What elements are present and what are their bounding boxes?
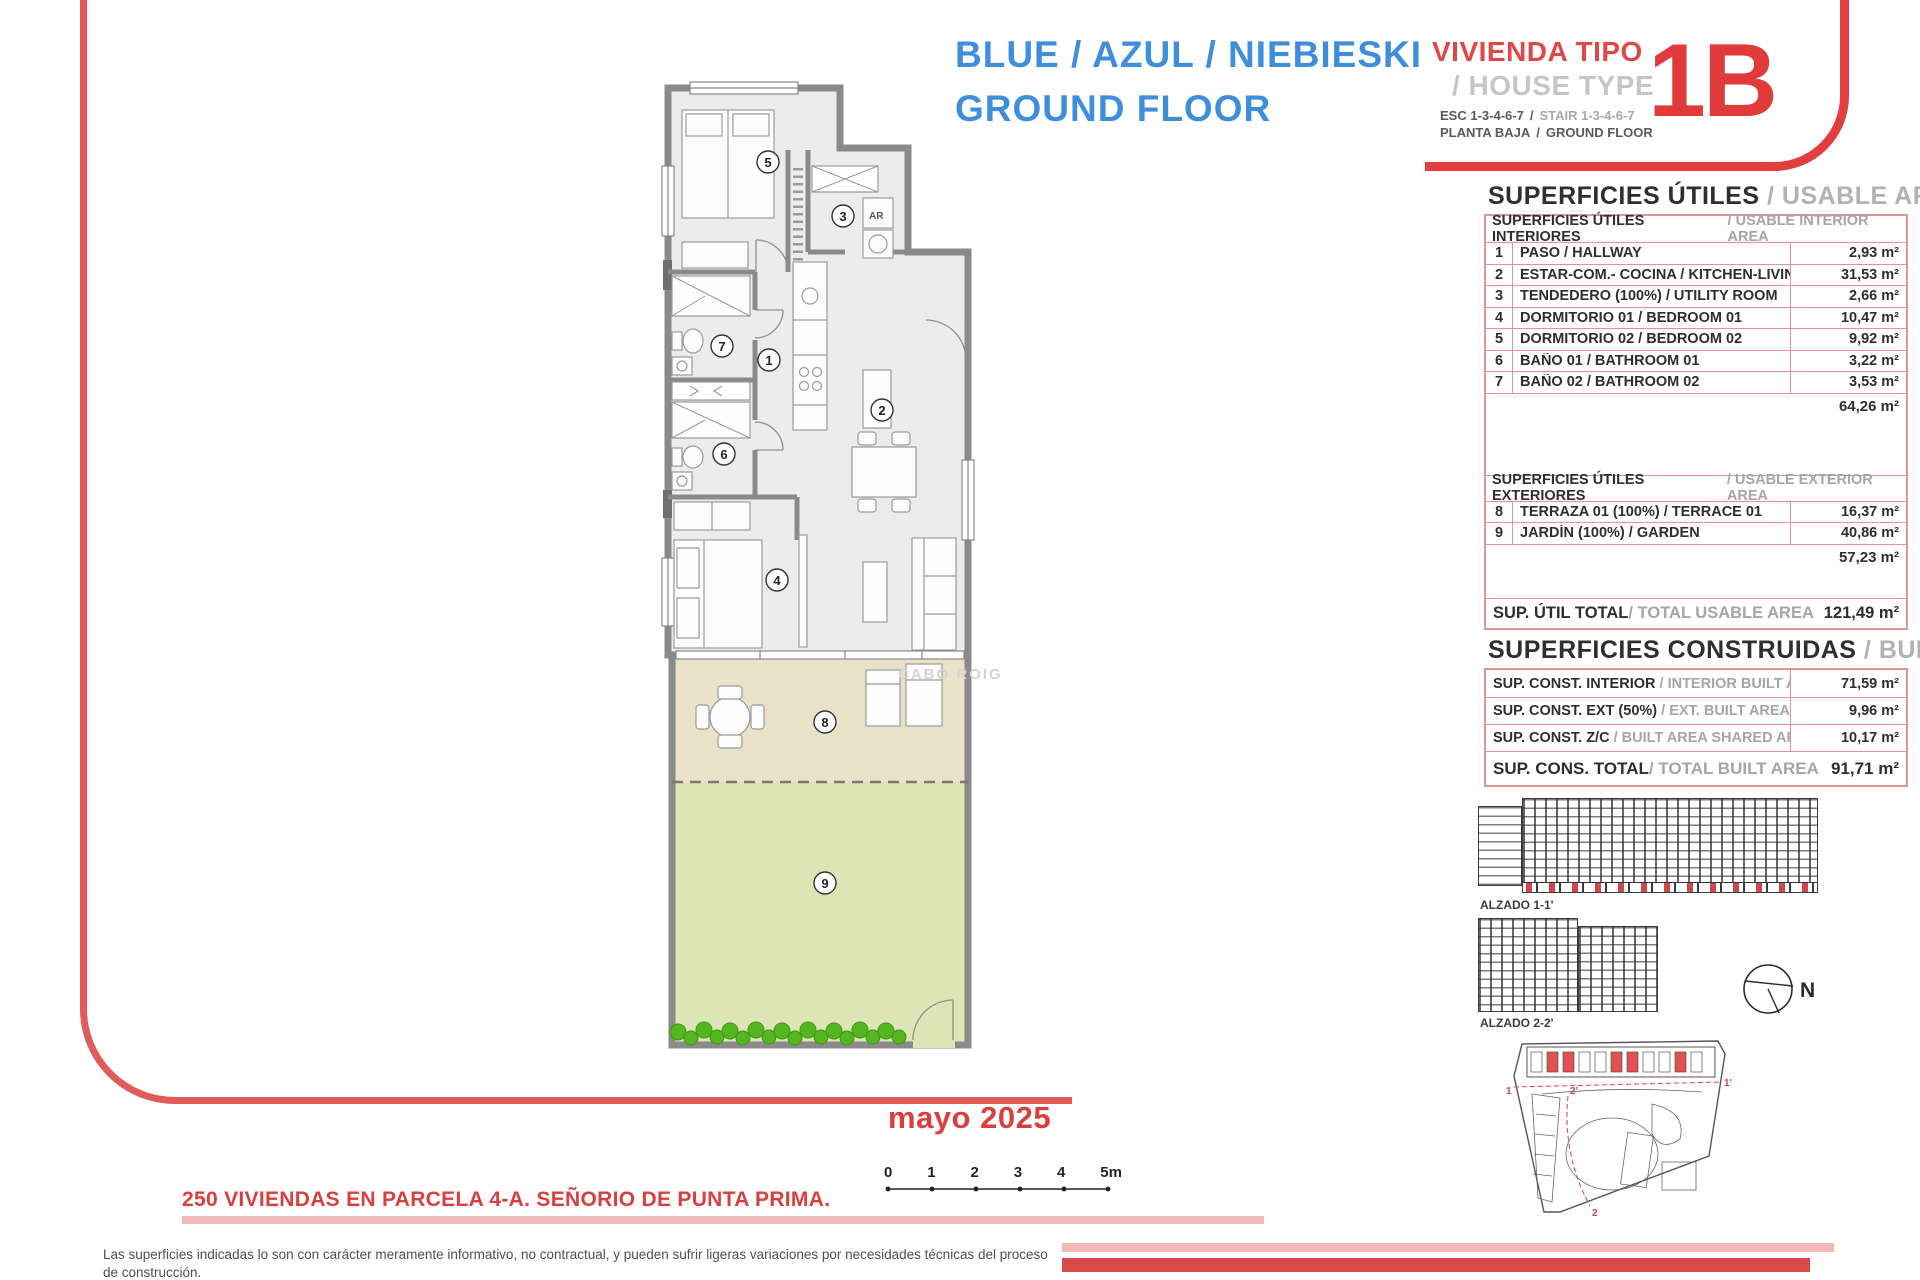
table-row: 1PASO / HALLWAY2,93 m² <box>1486 242 1906 264</box>
row-value: 16,37 m² <box>1790 502 1906 523</box>
table-row: 7BAÑO 02 / BATHROOM 023,53 m² <box>1486 371 1906 393</box>
svg-text:6: 6 <box>720 447 727 462</box>
elevation2-left-block <box>1478 918 1578 1012</box>
row-num: 8 <box>1486 502 1513 523</box>
elevation1 <box>1522 798 1818 893</box>
usable-area-table: SUPERFICIES ÚTILES INTERIORES / USABLE I… <box>1484 214 1908 630</box>
svg-text:1: 1 <box>1506 1086 1512 1097</box>
ar-appliance-label: AR <box>869 211 884 222</box>
row-label-en: / EXT. BUILT AREA <box>1657 703 1790 719</box>
row-value: 2,66 m² <box>1790 286 1906 307</box>
row-label: TENDEDERO (100%) / UTILITY ROOM <box>1513 288 1790 304</box>
house-type-label-es: VIVIENDA TIPO <box>1432 36 1643 68</box>
utility-fixtures <box>863 198 893 258</box>
room-label-6: 6 <box>713 443 735 465</box>
stair-floor-block: ESC 1-3-4-6-7/STAIR 1-3-4-6-7 PLANTA BAJ… <box>1440 108 1653 142</box>
room-label-4: 4 <box>766 569 788 591</box>
row-value: 10,47 m² <box>1790 308 1906 329</box>
section-lines <box>1514 1082 1722 1206</box>
planta-es: PLANTA BAJA <box>1440 125 1530 140</box>
row-value: 71,59 m² <box>1790 670 1906 697</box>
page-title: BLUE / AZUL / NIEBIESKI GROUND FLOOR <box>955 28 1422 135</box>
unit-code: 1B <box>1648 22 1775 141</box>
svg-text:2: 2 <box>1592 1208 1598 1219</box>
built-total-label-en: / TOTAL BUILT AREA <box>1649 759 1819 779</box>
row-value: 40,86 m² <box>1790 523 1906 544</box>
table-row: 5DORMITORIO 02 / BEDROOM 029,92 m² <box>1486 328 1906 350</box>
room-label-5: 5 <box>757 151 779 173</box>
exterior-header-en: / USABLE EXTERIOR AREA <box>1727 472 1906 504</box>
built-total-value: 91,71 m² <box>1831 759 1906 779</box>
row-value: 10,17 m² <box>1790 725 1906 751</box>
elevation2-label: ALZADO 2-2' <box>1480 1016 1554 1030</box>
wall-pier <box>663 260 672 290</box>
room-label-2: 2 <box>871 399 893 421</box>
elevation1-left-tower <box>1478 806 1522 886</box>
disclaimer: Las superficies indicadas lo son con car… <box>103 1246 1053 1280</box>
row-num: 9 <box>1486 523 1513 544</box>
room-label-8: 8 <box>814 711 836 733</box>
usable-area-title: SUPERFICIES ÚTILES / USABLE AREA <box>1488 182 1920 211</box>
elevation2-right-block <box>1578 926 1658 1012</box>
section-markers: 1 1' 2' 2 <box>1506 1078 1732 1219</box>
row-label: JARDÍN (100%) / GARDEN <box>1513 525 1790 541</box>
room-label-9: 9 <box>814 872 836 894</box>
built-area-title: SUPERFICIES CONSTRUIDAS / BUILT AREA <box>1488 636 1920 665</box>
built-total-label-es: SUP. CONS. TOTAL <box>1493 759 1649 779</box>
svg-text:4: 4 <box>773 573 781 588</box>
built-total-row: SUP. CONS. TOTAL / TOTAL BUILT AREA 91,7… <box>1486 751 1906 785</box>
room-label-7: 7 <box>711 335 733 357</box>
interior-header-es: SUPERFICIES ÚTILES INTERIORES <box>1492 213 1728 245</box>
elevation1-label: ALZADO 1-1' <box>1480 898 1554 912</box>
scale-tick-label: 0 <box>884 1164 892 1181</box>
landscape-paths <box>1532 1089 1702 1202</box>
interior-subtotal-row: 64,26 m² <box>1486 393 1906 419</box>
svg-text:5: 5 <box>764 155 771 170</box>
table-spacer <box>1486 419 1906 475</box>
interior-subtotal: 64,26 m² <box>1839 398 1899 415</box>
built-area-title-en: / BUILT AREA <box>1856 636 1920 664</box>
row-value: 9,96 m² <box>1790 698 1906 724</box>
disclaimer-es: Las superficies indicadas lo son con car… <box>103 1246 1053 1280</box>
planta-en: GROUND FLOOR <box>1546 125 1653 140</box>
row-value: 31,53 m² <box>1790 265 1906 286</box>
scale-bar: 0 1 2 3 4 5m <box>884 1164 1122 1201</box>
site-plan: 1 1' 2' 2 <box>1502 1034 1742 1224</box>
svg-text:7: 7 <box>718 339 725 354</box>
exterior-subtotal-row: 57,23 m² <box>1486 544 1906 570</box>
row-num: 4 <box>1486 308 1513 329</box>
table-row: SUP. CONST. INTERIOR / INTERIOR BUILT AR… <box>1486 670 1906 697</box>
row-label: ESTAR-COM.- COCINA / KITCHEN-LIVING <box>1513 267 1790 283</box>
room-label-1: 1 <box>758 349 780 371</box>
row-label: PASO / HALLWAY <box>1513 245 1790 261</box>
row-label-es: SUP. CONST. Z/C <box>1493 730 1610 746</box>
interior-header-row: SUPERFICIES ÚTILES INTERIORES / USABLE I… <box>1486 216 1906 242</box>
floor-plan: AR <box>660 70 980 1060</box>
usable-total-label-es: SUP. ÚTIL TOTAL <box>1493 604 1628 623</box>
house-type-label-en: / HOUSE TYPE <box>1452 70 1654 102</box>
row-label-es: SUP. CONST. EXT (50%) <box>1493 703 1657 719</box>
exterior-header-es: SUPERFICIES ÚTILES EXTERIORES <box>1492 472 1727 504</box>
svg-text:9: 9 <box>821 876 828 891</box>
scale-tick-label: 4 <box>1057 1164 1065 1181</box>
exterior-subtotal: 57,23 m² <box>1839 549 1899 566</box>
scale-line <box>884 1184 1122 1196</box>
row-num: 1 <box>1486 243 1513 264</box>
row-value: 3,53 m² <box>1790 372 1906 393</box>
svg-text:1': 1' <box>1724 1078 1732 1089</box>
table-spacer <box>1486 570 1906 598</box>
row-label-en: / INTERIOR BUILT AREA <box>1655 676 1790 692</box>
built-area-title-es: SUPERFICIES CONSTRUIDAS <box>1488 636 1856 664</box>
row-label: DORMITORIO 02 / BEDROOM 02 <box>1513 331 1790 347</box>
watermark: CABO ROIG <box>898 666 1003 683</box>
row-label: BAÑO 01 / BATHROOM 01 <box>1513 353 1790 369</box>
building-units <box>1531 1052 1702 1072</box>
esc-en: STAIR 1-3-4-6-7 <box>1539 108 1634 123</box>
usable-total-label-en: / TOTAL USABLE AREA <box>1628 604 1813 623</box>
svg-text:8: 8 <box>821 715 828 730</box>
slash: / <box>1530 125 1546 140</box>
slash: / <box>1524 108 1540 123</box>
elevation1-ground-floor <box>1523 882 1817 892</box>
table-row: 2ESTAR-COM.- COCINA / KITCHEN-LIVING31,5… <box>1486 264 1906 286</box>
usable-total-row: SUP. ÚTIL TOTAL / TOTAL USABLE AREA 121,… <box>1486 598 1906 628</box>
scale-tick-label: 2 <box>971 1164 979 1181</box>
scale-labels: 0 1 2 3 4 5m <box>884 1164 1122 1183</box>
usable-total-value: 121,49 m² <box>1824 604 1906 623</box>
scale-tick-label: 5m <box>1100 1164 1122 1181</box>
svg-text:1: 1 <box>765 353 772 368</box>
row-value: 2,93 m² <box>1790 243 1906 264</box>
row-label-es: SUP. CONST. INTERIOR <box>1493 676 1655 692</box>
svg-text:2': 2' <box>1570 1086 1578 1097</box>
table-row: 9JARDÍN (100%) / GARDEN40,86 m² <box>1486 522 1906 544</box>
kitchen-counter <box>793 262 827 430</box>
table-row: 3TENDEDERO (100%) / UTILITY ROOM2,66 m² <box>1486 285 1906 307</box>
project-title: 250 VIVIENDAS EN PARCELA 4-A. SEÑORIO DE… <box>182 1188 830 1212</box>
row-label: BAÑO 02 / BATHROOM 02 <box>1513 374 1790 390</box>
north-arrow-icon: N <box>1738 958 1828 1020</box>
row-num: 3 <box>1486 286 1513 307</box>
row-label: TERRAZA 01 (100%) / TERRACE 01 <box>1513 504 1790 520</box>
table-row: 6BAÑO 01 / BATHROOM 013,22 m² <box>1486 350 1906 372</box>
row-label-en: / BUILT AREA SHARED AREAS <box>1610 730 1790 746</box>
date-label: mayo 2025 <box>888 1100 1051 1136</box>
plan-sheet: BLUE / AZUL / NIEBIESKI GROUND FLOOR VIV… <box>0 0 1920 1280</box>
table-row: 4DORMITORIO 01 / BEDROOM 0110,47 m² <box>1486 307 1906 329</box>
north-label: N <box>1800 979 1815 1002</box>
row-num: 2 <box>1486 265 1513 286</box>
built-area-table: SUP. CONST. INTERIOR / INTERIOR BUILT AR… <box>1484 668 1908 787</box>
wall-pier <box>663 490 672 518</box>
garden-floor <box>672 782 968 1045</box>
bottom-bar-dark <box>1062 1258 1810 1272</box>
bottom-bar-light <box>1062 1243 1834 1252</box>
row-num: 7 <box>1486 372 1513 393</box>
table-row: SUP. CONST. Z/C / BUILT AREA SHARED AREA… <box>1486 724 1906 751</box>
project-underline <box>182 1216 1264 1224</box>
svg-text:3: 3 <box>839 209 846 224</box>
room-label-3: 3 <box>832 205 854 227</box>
row-value: 9,92 m² <box>1790 329 1906 350</box>
table-row: 8TERRAZA 01 (100%) / TERRACE 0116,37 m² <box>1486 501 1906 523</box>
svg-text:2: 2 <box>878 403 885 418</box>
interior-header-en: / USABLE INTERIOR AREA <box>1728 213 1906 245</box>
table-row: SUP. CONST. EXT (50%) / EXT. BUILT AREA … <box>1486 697 1906 724</box>
row-label: DORMITORIO 01 / BEDROOM 01 <box>1513 310 1790 326</box>
usable-area-title-en: / USABLE AREA <box>1760 182 1920 210</box>
row-num: 5 <box>1486 329 1513 350</box>
row-num: 6 <box>1486 351 1513 372</box>
usable-area-title-es: SUPERFICIES ÚTILES <box>1488 182 1760 210</box>
row-value: 3,22 m² <box>1790 351 1906 372</box>
scale-tick-label: 3 <box>1014 1164 1022 1181</box>
exterior-header-row: SUPERFICIES ÚTILES EXTERIORES / USABLE E… <box>1486 475 1906 501</box>
esc-es: ESC 1-3-4-6-7 <box>1440 108 1524 123</box>
scale-tick-label: 1 <box>927 1164 935 1181</box>
